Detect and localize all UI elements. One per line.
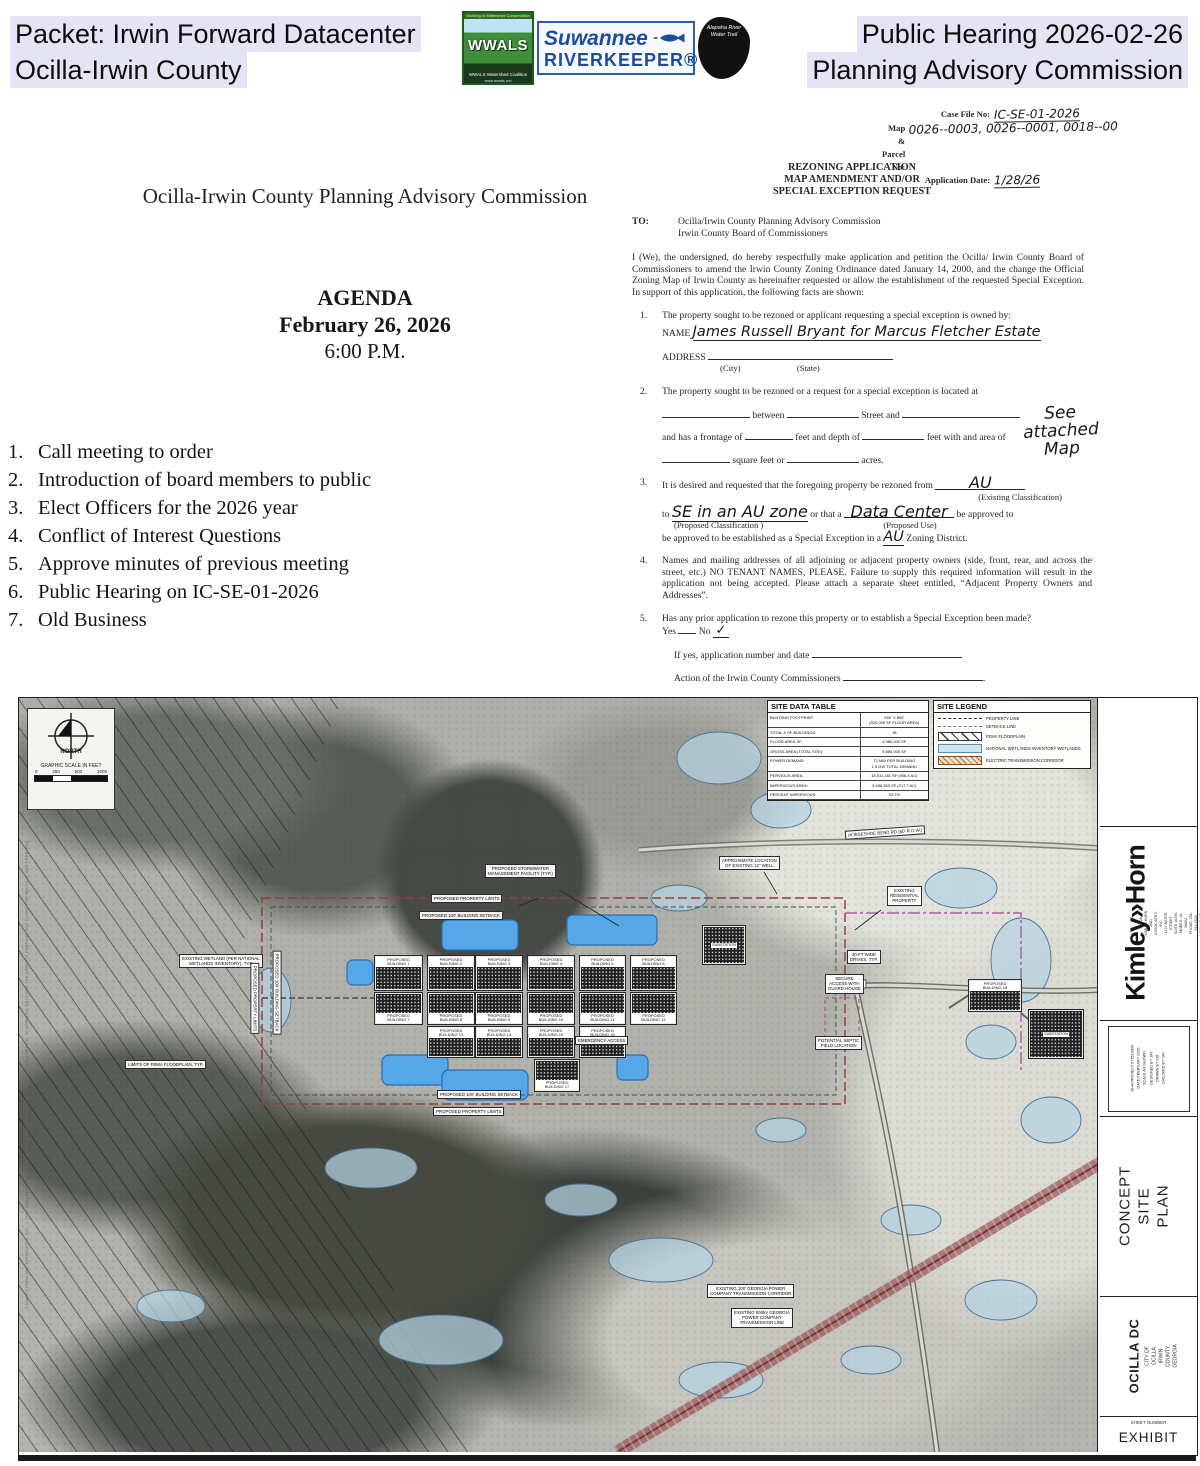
proposed-building-7: PROPOSED BUILDING 7 — [375, 993, 422, 1024]
sheet-title: CONCEPT SITE PLAN — [1116, 1166, 1173, 1246]
wwals-logo-top-text: Working in Watershed Conservation — [464, 13, 532, 19]
to-line2: Irwin County Board of Commissioners — [678, 228, 881, 240]
commission-name: Planning Advisory Commission — [807, 52, 1188, 88]
proposed-building-18: PROPOSED BUILDING 18 — [969, 980, 1021, 1011]
proposed-building-17: PROPOSED BUILDING 17 — [535, 1060, 579, 1091]
site-data-row: POWER DEMAND:72 MW PER BUILDING 1.3 GW T… — [768, 757, 928, 772]
legend-row: PROPERTY LINE — [938, 716, 1086, 721]
zoning-district-handwritten: AU — [883, 529, 904, 546]
proposed-building-10: PROPOSED BUILDING 10 — [528, 993, 574, 1024]
form-item-1: 1. The property sought to be rezoned or … — [632, 310, 1102, 375]
case-file-label: Case File No: — [882, 108, 990, 122]
wwals-logo: Working in Watershed Conservation WWALS … — [462, 11, 534, 85]
owner-name-handwritten: James Russell Bryant for Marcus Fletcher… — [693, 324, 1041, 341]
legend-row: ELECTRIC TRANSMISSION CORRIDOR — [938, 756, 1086, 765]
agenda-item: 5.Approve minutes of previous meeting — [8, 550, 568, 578]
site-legend-title: SITE LEGEND — [934, 701, 1090, 713]
agenda-heading: AGENDA — [60, 284, 670, 311]
proposed-building-12: PROPOSED BUILDING 12 — [631, 993, 676, 1024]
riverkeeper-logo-line2: RIVERKEEPER® — [544, 50, 688, 70]
scan-bottom-strip — [18, 1455, 1196, 1461]
wwals-logo-url: www.wwals.net — [469, 78, 527, 83]
proposed-building-15: PROPOSED BUILDING 15 — [528, 1027, 574, 1057]
proposed-building-3: PROPOSED BUILDING 3 — [476, 956, 522, 990]
kimley-horn-address: © 2026 KIMLEY-HORN AND ASSOCIATES, INC. … — [1139, 910, 1200, 935]
site-data-row: IMPERVIOUS AREA:9,456,353 SF (217.7 AC) — [768, 781, 928, 791]
agenda-item: 6.Public Hearing on IC-SE-01-2026 — [8, 578, 568, 606]
form-item-4: 4. Names and mailing addresses of all ad… — [632, 555, 1102, 601]
scale-bar — [34, 775, 108, 782]
proposed-building-13: PROPOSED BUILDING 13 — [428, 1027, 474, 1057]
site-data-row: GROSS AREA (TOTAL SITE):9,880,000 SF — [768, 747, 928, 757]
site-data-row: PERVIOUS AREA:18,511,181 SF (406.4 AC) — [768, 772, 928, 782]
site-data-table: SITE DATA TABLE BUILDING FOOTPRINT:650' … — [767, 700, 929, 801]
application-date-value: 1/28/26 — [994, 174, 1041, 189]
form-to-block: TO: Ocilla/Irwin County Planning Advisor… — [632, 216, 1102, 239]
proposed-building-1: PROPOSED BUILDING 1 — [375, 956, 422, 990]
rezoning-form: Case File No: IC-SE-01-2026 Map & Parcel… — [632, 104, 1102, 685]
map-annotation-label: APPROXIMATE LOCATION OF EXISTING 12" WEL… — [719, 856, 780, 870]
sheet-number-label: SHEET NUMBER — [1100, 1420, 1197, 1425]
see-attached-map-handwritten: See attached Map — [1019, 402, 1104, 460]
project-name: OCILLA DC — [1127, 1319, 1142, 1394]
agenda-item: 4.Conflict of Interest Questions — [8, 522, 568, 550]
proposed-use-handwritten: Data Center — [844, 506, 954, 519]
site-data-row: BUILDING FOOTPRINT:650' X 800' (520,000 … — [768, 713, 928, 728]
header-right: Public Hearing 2026-02-26 Planning Advis… — [807, 16, 1188, 88]
concept-site-plan-section: NORTH GRAPHIC SCALE IN FEET 0250 5001000… — [0, 695, 1200, 1466]
packet-title: Packet: Irwin Forward Datacenter — [10, 16, 421, 52]
map-annotation-label: PROPOSED STORMWATER MANAGEMENT FACILITY … — [485, 864, 556, 878]
map-annotation-label: EXISTING 500kV GEORGIA POWER COMPANY TRA… — [731, 1308, 793, 1328]
map-annotation-label: PROPOSED 100' BUILDING SETBACK — [437, 1090, 521, 1099]
legend-row: NATIONAL WETLANDS INVENTORY WETLANDS — [938, 744, 1086, 753]
agenda-heading-block: AGENDA February 26, 2026 6:00 P.M. — [60, 284, 670, 365]
legend-row: SETBACK LINE — [938, 724, 1086, 729]
substation-1: SUBSTATION — [703, 926, 745, 964]
plan-sheet: NORTH GRAPHIC SCALE IN FEET 0250 5001000… — [18, 697, 1198, 1456]
case-file-block: Case File No: IC-SE-01-2026 Map & Parcel… — [882, 108, 1112, 188]
site-data-row: PERCENT IMPERVIOUS:33.7% — [768, 791, 928, 801]
fish-icon — [652, 31, 688, 45]
map-parcel-value: 0026--0003, 0026--0001, 0018--00 — [909, 120, 1119, 176]
map-frame: NORTH GRAPHIC SCALE IN FEET 0250 5001000… — [19, 698, 1098, 1452]
agenda-item: 3.Elect Officers for the 2026 year — [8, 494, 568, 522]
legend-row: FEMA FLOODPLAIN — [938, 732, 1086, 741]
proposed-building-11: PROPOSED BUILDING 11 — [580, 993, 625, 1024]
title-block: Kimley»Horn © 2026 KIMLEY-HORN AND ASSOC… — [1100, 698, 1197, 1452]
to-line1: Ocilla/Irwin County Planning Advisory Co… — [678, 216, 881, 228]
header-left: Packet: Irwin Forward Datacenter Ocilla-… — [10, 16, 421, 88]
site-data-row: TOTAL # OF BUILDINGS:18 — [768, 728, 928, 738]
no-checkmark-handwritten: ✓ — [713, 625, 729, 638]
site-legend: SITE LEGEND PROPERTY LINESETBACK LINEFEM… — [933, 700, 1091, 769]
agenda-time: 6:00 P.M. — [60, 338, 670, 365]
edge-copyright-note: © KIMLEY-HORN AND ASSOCIATES, INC. — THI… — [25, 704, 29, 1444]
map-annotation-label: PROPOSED 100' BUILDING SETBACK — [272, 951, 281, 1035]
form-intro: I (We), the undersigned, do hereby respe… — [632, 252, 1084, 298]
proposed-building-4: PROPOSED BUILDING 4 — [528, 956, 574, 990]
hearing-date: Public Hearing 2026-02-26 — [857, 16, 1188, 52]
proposed-building-5: PROPOSED BUILDING 5 — [580, 956, 625, 990]
proposed-classification-handwritten: SE in an AU zone — [672, 502, 808, 522]
map-annotation-label: EXISTING 100' GEORGIA POWER COMPANY TRAN… — [707, 1284, 794, 1298]
north-arrow-box: NORTH GRAPHIC SCALE IN FEET 0250 5001000 — [27, 708, 115, 810]
map-annotation-label: LIMITS OF FEMA FLOODPLAIN, TYP. — [125, 1060, 206, 1069]
agenda-item: 2.Introduction of board members to publi… — [8, 466, 568, 494]
proposed-building-2: PROPOSED BUILDING 2 — [428, 956, 474, 990]
map-annotation-label: POTENTIAL SEPTIC FIELD LOCATION — [815, 1036, 862, 1050]
riverkeeper-logo: Suwannee RIVERKEEPER® — [537, 21, 695, 75]
agenda-item: 1.Call meeting to order — [8, 438, 568, 466]
sheet-number: EXHIBIT — [1100, 1430, 1197, 1445]
project-location: CITY OF OCILLA IRWIN COUNTY, GEORGIA — [1145, 1339, 1180, 1374]
legend-rows: PROPERTY LINESETBACK LINEFEMA FLOODPLAIN… — [934, 716, 1090, 765]
map-annotation-label: EXISTING RESIDENTIAL PROPERTY — [887, 886, 922, 906]
packet-subtitle: Ocilla-Irwin County — [10, 52, 247, 88]
riverkeeper-logo-line1: Suwannee — [544, 27, 648, 50]
proposed-building-14: PROPOSED BUILDING 14 — [476, 1027, 522, 1057]
map-annotation-label: PROPOSED 100' BUILDING SETBACK — [419, 911, 503, 920]
agenda-item: 7.Old Business — [8, 606, 568, 634]
existing-classification-handwritten: AU — [935, 477, 1025, 490]
proposed-building-9: PROPOSED BUILDING 9 — [476, 993, 522, 1024]
form-item-3: 3. It is desired and requested that the … — [632, 477, 1102, 544]
project-info-text: KHA PROJECT 073510000 DATE FEBRUARY 2026… — [1129, 1045, 1166, 1091]
site-data-row: FLOOR AREA SF:9,360,000 SF — [768, 738, 928, 748]
map-annotation-label: 30-FT WIDE DRIVES, TYP. — [847, 950, 881, 964]
agenda-org-title: Ocilla-Irwin County Planning Advisory Co… — [60, 184, 670, 209]
packet-page: Packet: Irwin Forward Datacenter Ocilla-… — [0, 0, 1200, 1466]
north-label: NORTH — [60, 749, 81, 755]
wwals-logo-name: WWALS — [468, 37, 528, 54]
map-annotation-label: PROPOSED PROPERTY LIMITS — [250, 963, 259, 1034]
site-data-rows: BUILDING FOOTPRINT:650' X 800' (520,000 … — [768, 713, 928, 800]
site-data-table-title: SITE DATA TABLE — [768, 701, 928, 713]
proposed-building-6: PROPOSED BUILDING 6 — [631, 956, 676, 990]
map-annotation-label: PROPOSED PROPERTY LIMITS — [433, 1107, 504, 1116]
agenda-date: February 26, 2026 — [60, 311, 670, 338]
scale-ticks: 0250 5001000 — [35, 769, 107, 774]
map-annotation-label: EMERGENCY ACCESS — [575, 1036, 628, 1045]
form-item-5: 5. Has any prior application to rezone t… — [632, 613, 1102, 685]
map-annotation-label: PROPOSED PROPERTY LIMITS — [431, 894, 502, 903]
map-parcel-label: Map & Parcel No: — [882, 122, 905, 174]
header-logos: Working in Watershed Conservation WWALS … — [462, 12, 750, 84]
page-header: Packet: Irwin Forward Datacenter Ocilla-… — [0, 0, 1200, 92]
agenda-list: 1.Call meeting to order2.Introduction of… — [8, 438, 568, 634]
proposed-building-8: PROPOSED BUILDING 8 — [428, 993, 474, 1024]
application-date-label: Application Date: — [882, 174, 990, 188]
alapaha-water-trail-logo: Alapaha River Water Trail — [698, 17, 750, 79]
map-annotation-label: SECURE ACCESS WITH GUARD HOUSE — [825, 974, 864, 994]
substation-2: SUBSTATION — [1029, 1010, 1083, 1058]
